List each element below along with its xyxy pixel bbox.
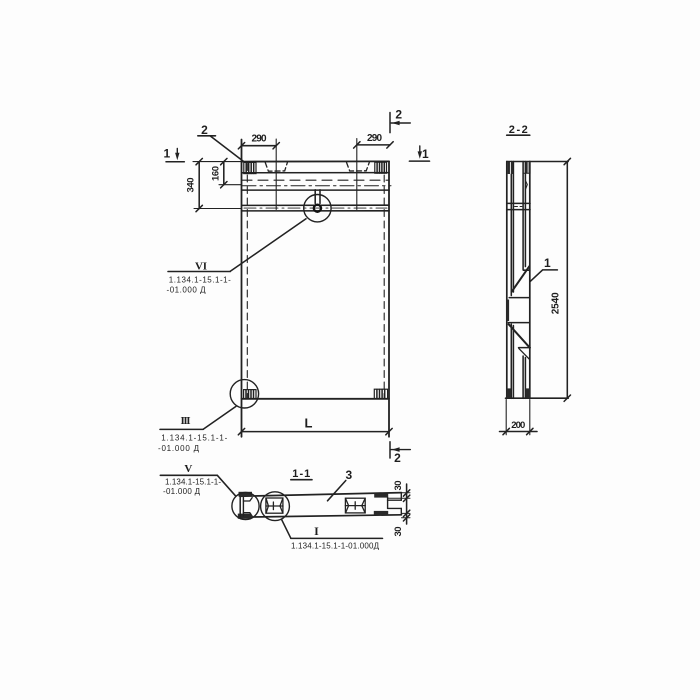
svg-text:3: 3 [345,468,352,482]
svg-text:-01.000 Д: -01.000 Д [167,285,207,294]
svg-text:2540: 2540 [551,292,562,314]
svg-text:1.134.1-15.1-1-: 1.134.1-15.1-1- [165,478,221,487]
svg-text:290: 290 [252,133,267,144]
svg-text:-01.000 Д: -01.000 Д [158,444,200,453]
svg-text:30: 30 [393,481,404,491]
svg-text:1: 1 [422,147,429,161]
svg-text:30: 30 [393,527,404,537]
svg-text:III: III [181,415,191,427]
svg-text:1.134.1-15.1-1-: 1.134.1-15.1-1- [161,434,227,443]
svg-text:I: I [314,524,319,538]
svg-text:200: 200 [511,420,525,431]
svg-text:2-2: 2-2 [509,124,528,136]
svg-text:160: 160 [211,166,222,181]
svg-text:-01.000 Д: -01.000 Д [163,487,201,496]
svg-text:2: 2 [394,451,401,465]
svg-text:1: 1 [163,147,170,161]
svg-text:V: V [184,463,192,475]
svg-text:VI: VI [195,260,207,272]
svg-text:290: 290 [367,133,382,144]
svg-text:340: 340 [186,178,197,193]
svg-text:1.134.1-15.1-1-01.000Д: 1.134.1-15.1-1-01.000Д [291,541,380,550]
svg-text:L: L [305,416,313,431]
svg-text:2: 2 [201,123,208,137]
svg-text:1-1: 1-1 [292,468,310,480]
svg-text:1.134.1-15.1-1-: 1.134.1-15.1-1- [169,276,231,285]
svg-text:2: 2 [395,108,402,122]
svg-text:1: 1 [544,256,551,270]
